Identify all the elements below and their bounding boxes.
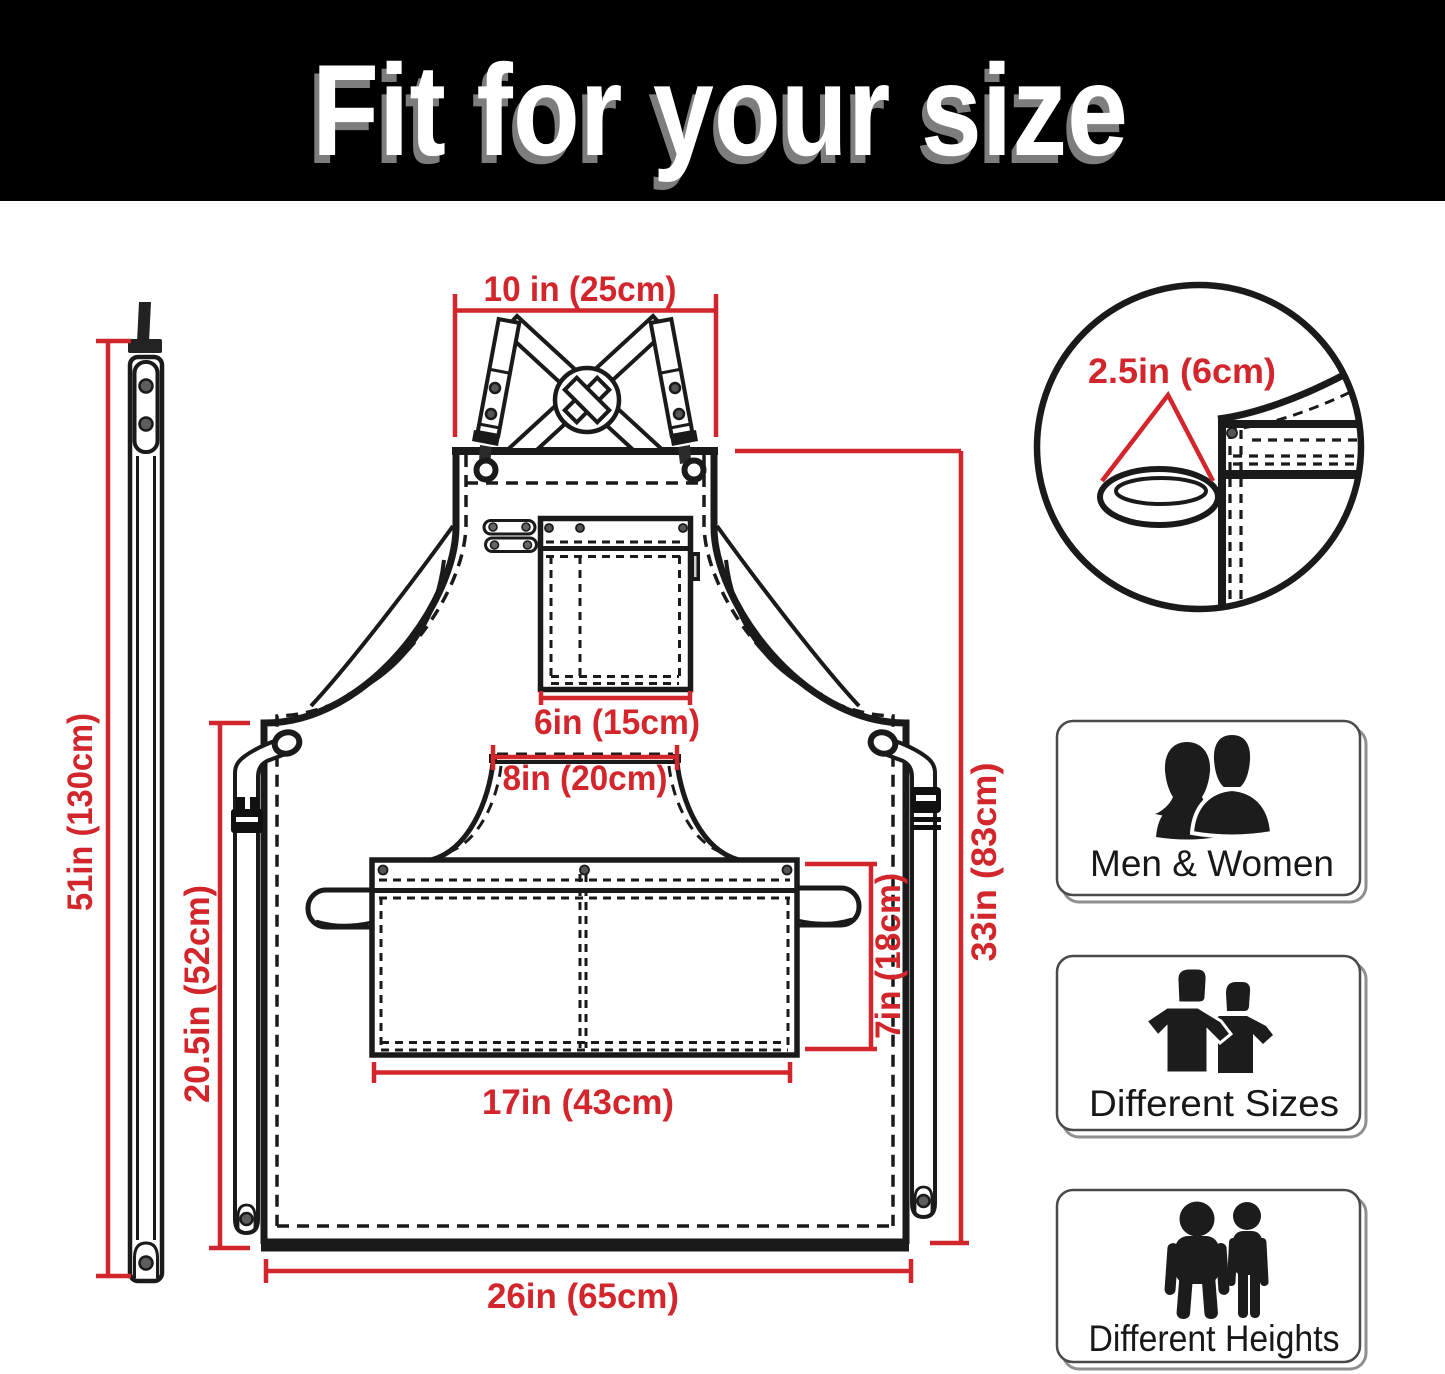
svg-text:51in (130cm): 51in (130cm): [61, 713, 100, 911]
svg-text:Different Heights: Different Heights: [1089, 1318, 1340, 1359]
svg-text:10 in (25cm): 10 in (25cm): [484, 270, 677, 309]
svg-text:26in (65cm): 26in (65cm): [487, 1277, 679, 1316]
svg-text:7in (18cm): 7in (18cm): [869, 873, 908, 1039]
svg-text:33in (83cm): 33in (83cm): [965, 763, 1004, 962]
svg-text:2.5in (6cm): 2.5in (6cm): [1088, 352, 1276, 391]
svg-text:8in (20cm): 8in (20cm): [503, 759, 668, 798]
svg-text:17in (43cm): 17in (43cm): [482, 1083, 674, 1122]
svg-text:Men & Women: Men & Women: [1090, 843, 1334, 884]
svg-text:Different Sizes: Different Sizes: [1089, 1083, 1339, 1124]
svg-text:6in (15cm): 6in (15cm): [534, 703, 700, 742]
svg-text:20.5in (52cm): 20.5in (52cm): [178, 885, 217, 1103]
svg-text:Fit for your size: Fit for your size: [312, 37, 1128, 183]
